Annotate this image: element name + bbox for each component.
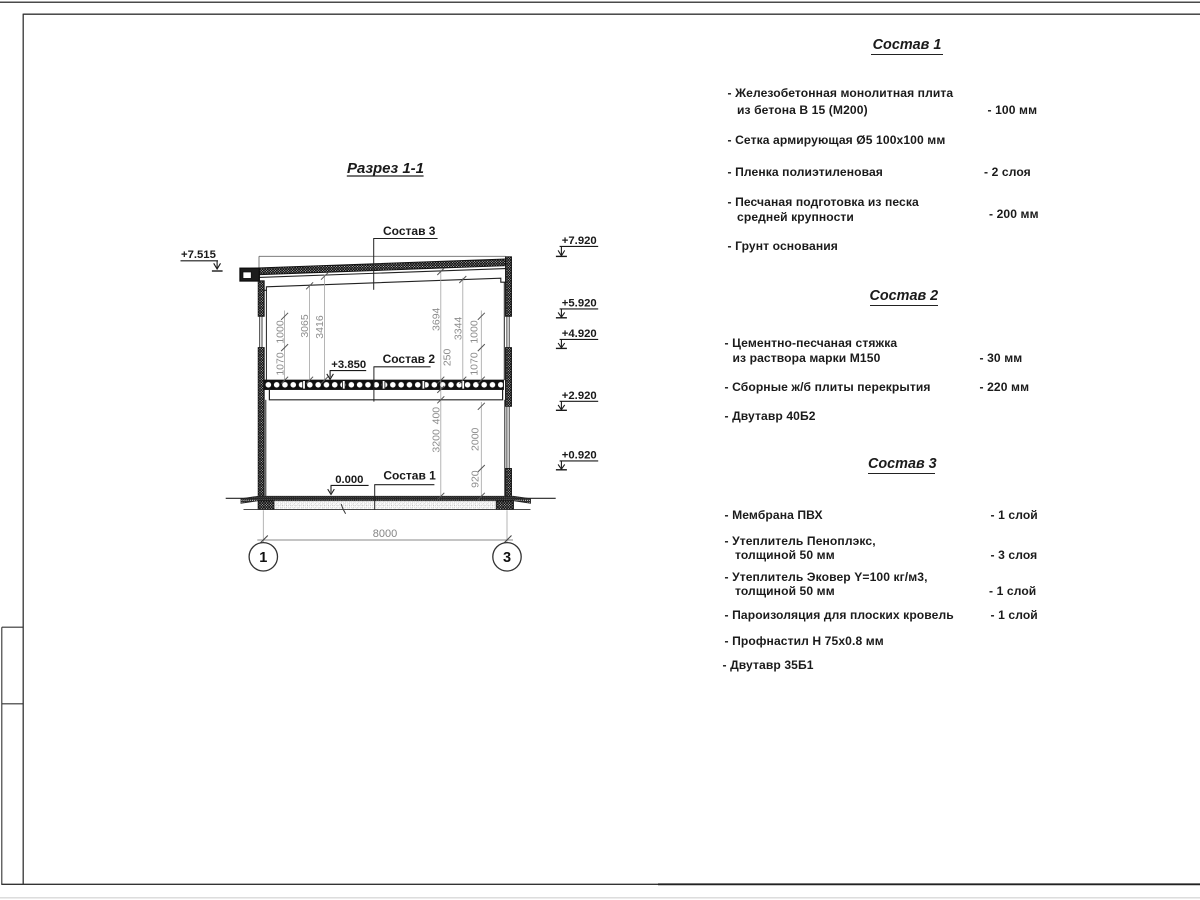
svg-text:3: 3: [503, 550, 511, 566]
svg-text:1000: 1000: [468, 320, 480, 344]
svg-text:3200: 3200: [430, 429, 442, 453]
svg-text:Состав 3: Состав 3: [383, 224, 436, 238]
svg-text:0.000: 0.000: [335, 474, 363, 486]
svg-text:+0.920: +0.920: [562, 450, 597, 462]
svg-text:+2.920: +2.920: [562, 390, 597, 402]
svg-text:+7.920: +7.920: [562, 235, 597, 247]
svg-text:920: 920: [469, 470, 481, 488]
svg-text:+7.515: +7.515: [181, 249, 216, 261]
svg-text:400: 400: [430, 407, 442, 425]
svg-text:8000: 8000: [373, 528, 397, 540]
svg-text:Разрез 1-1: Разрез 1-1: [347, 160, 424, 177]
svg-text:1070: 1070: [274, 352, 286, 376]
svg-text:+5.920: +5.920: [562, 298, 597, 310]
svg-text:+3.850: +3.850: [331, 359, 366, 371]
svg-text:3065: 3065: [299, 314, 311, 338]
svg-text:1: 1: [259, 550, 267, 566]
svg-text:Состав 2: Состав 2: [383, 352, 436, 366]
svg-text:3694: 3694: [430, 307, 442, 331]
svg-text:250: 250: [441, 348, 453, 366]
svg-text:+4.920: +4.920: [562, 328, 597, 340]
svg-text:3344: 3344: [452, 317, 464, 341]
svg-text:1000: 1000: [274, 320, 286, 344]
svg-text:1070: 1070: [468, 352, 480, 376]
svg-text:3416: 3416: [314, 315, 326, 339]
svg-text:2000: 2000: [469, 427, 481, 451]
svg-text:Состав 1: Состав 1: [383, 468, 436, 482]
